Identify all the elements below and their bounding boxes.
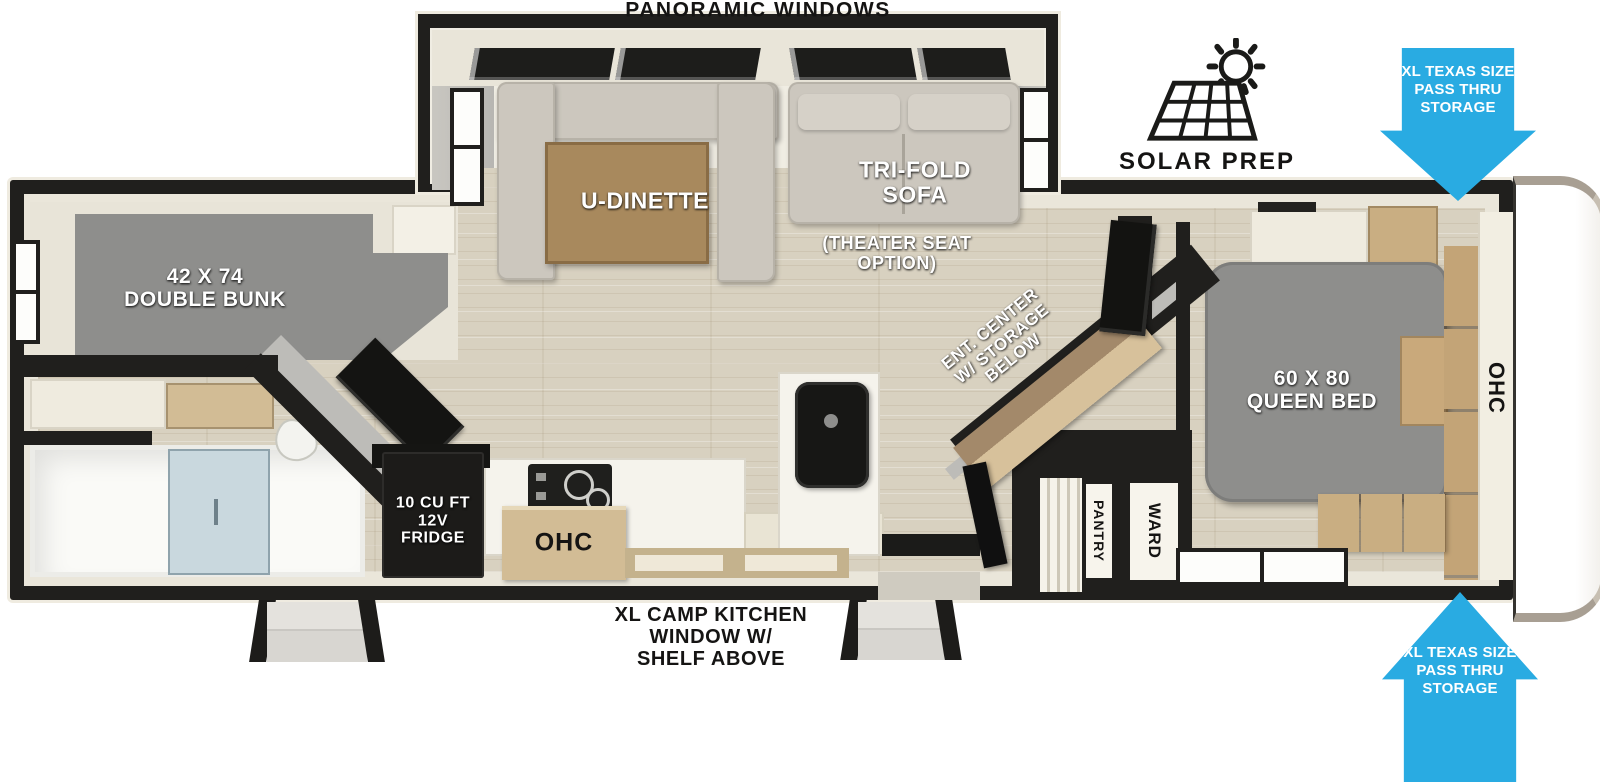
double-bunk-label: 42 X 74DOUBLE BUNK <box>124 265 286 311</box>
slideout-side-window-left <box>450 88 484 206</box>
panoramic-roof-window-4 <box>917 48 1011 80</box>
bath-vanity-cabinet <box>30 379 166 429</box>
shower-door-handle <box>214 499 218 525</box>
tri-fold-sofa-label: TRI-FOLDSOFA <box>859 158 971 209</box>
panoramic-roof-window-2 <box>615 48 761 80</box>
panoramic-windows-label: PANORAMIC WINDOWS <box>625 0 890 22</box>
sofa-back-pillow-left <box>798 94 900 130</box>
cooktop-grate-2 <box>536 492 546 500</box>
bedroom-ohc-label: OHC <box>1483 362 1509 414</box>
ward-label: WARD <box>1144 503 1164 559</box>
entry-steps-rear <box>254 600 380 662</box>
bedroom-overhead-cabinet-top <box>1250 210 1368 266</box>
u-dinette-bench-right <box>717 82 775 282</box>
entry-steps-main <box>845 600 957 660</box>
shower-door <box>168 449 270 575</box>
cooktop <box>528 464 612 512</box>
entry-door-threshold <box>882 534 980 556</box>
camp-kitchen-window-label: XL CAMP KITCHEN WINDOW W/ SHELF ABOVE <box>615 604 808 670</box>
theater-seat-option-label: (THEATER SEATOPTION) <box>822 234 971 274</box>
camp-kitchen-window-pane-1 <box>635 555 723 571</box>
bedroom-corner-cabinet <box>1368 206 1438 268</box>
fridge-label: 10 CU FT12VFRIDGE <box>396 495 470 548</box>
solar-prep-icon <box>1138 38 1273 148</box>
wall-closet-bottom <box>20 431 152 445</box>
bunk-room-window <box>12 240 40 344</box>
slideout-side-window-right <box>1020 88 1052 192</box>
camp-kitchen-window-pane-2 <box>745 555 837 571</box>
kitchen-ohc-label: OHC <box>535 529 594 557</box>
u-dinette-label: U-DINETTE <box>581 188 709 213</box>
sink-drain <box>824 414 838 428</box>
kitchen-sink <box>795 382 869 488</box>
step-tread <box>267 602 367 662</box>
headboard-shelf <box>1400 336 1448 426</box>
queen-bed-label: 60 X 80QUEEN BED <box>1247 367 1377 413</box>
bedroom-bottom-window <box>1176 548 1348 586</box>
wall-bunk-bottom <box>20 355 278 377</box>
entry-door-opening <box>878 572 980 600</box>
solar-prep-label: SOLAR PREP <box>1119 149 1295 175</box>
rv-floorplan-page: { "annotations": { "panoramic_windows": … <box>0 0 1600 730</box>
bedroom-divider-wall <box>1176 222 1190 434</box>
pantry-shelves <box>1040 478 1082 592</box>
bath-overhead-cabinet <box>166 383 274 429</box>
bunk-corner-cabinet <box>392 205 456 255</box>
panoramic-roof-window-1 <box>469 48 615 80</box>
pantry-label: PANTRY <box>1091 500 1107 562</box>
panoramic-roof-window-3 <box>789 48 917 80</box>
bedroom-top-window <box>1258 202 1316 212</box>
bedroom-wardrobe-column <box>1444 246 1478 580</box>
front-cap <box>1513 176 1600 622</box>
sofa-back-pillow-right <box>908 94 1010 130</box>
camp-kitchen-window <box>625 548 849 578</box>
step-tread <box>858 602 944 660</box>
cooktop-grate-1 <box>536 473 546 481</box>
floorplan-canvas: U-DINETTE TRI-FOLDSOFA (THEATER SEATOPTI… <box>0 0 1600 730</box>
bed-foot-dresser <box>1318 494 1446 552</box>
